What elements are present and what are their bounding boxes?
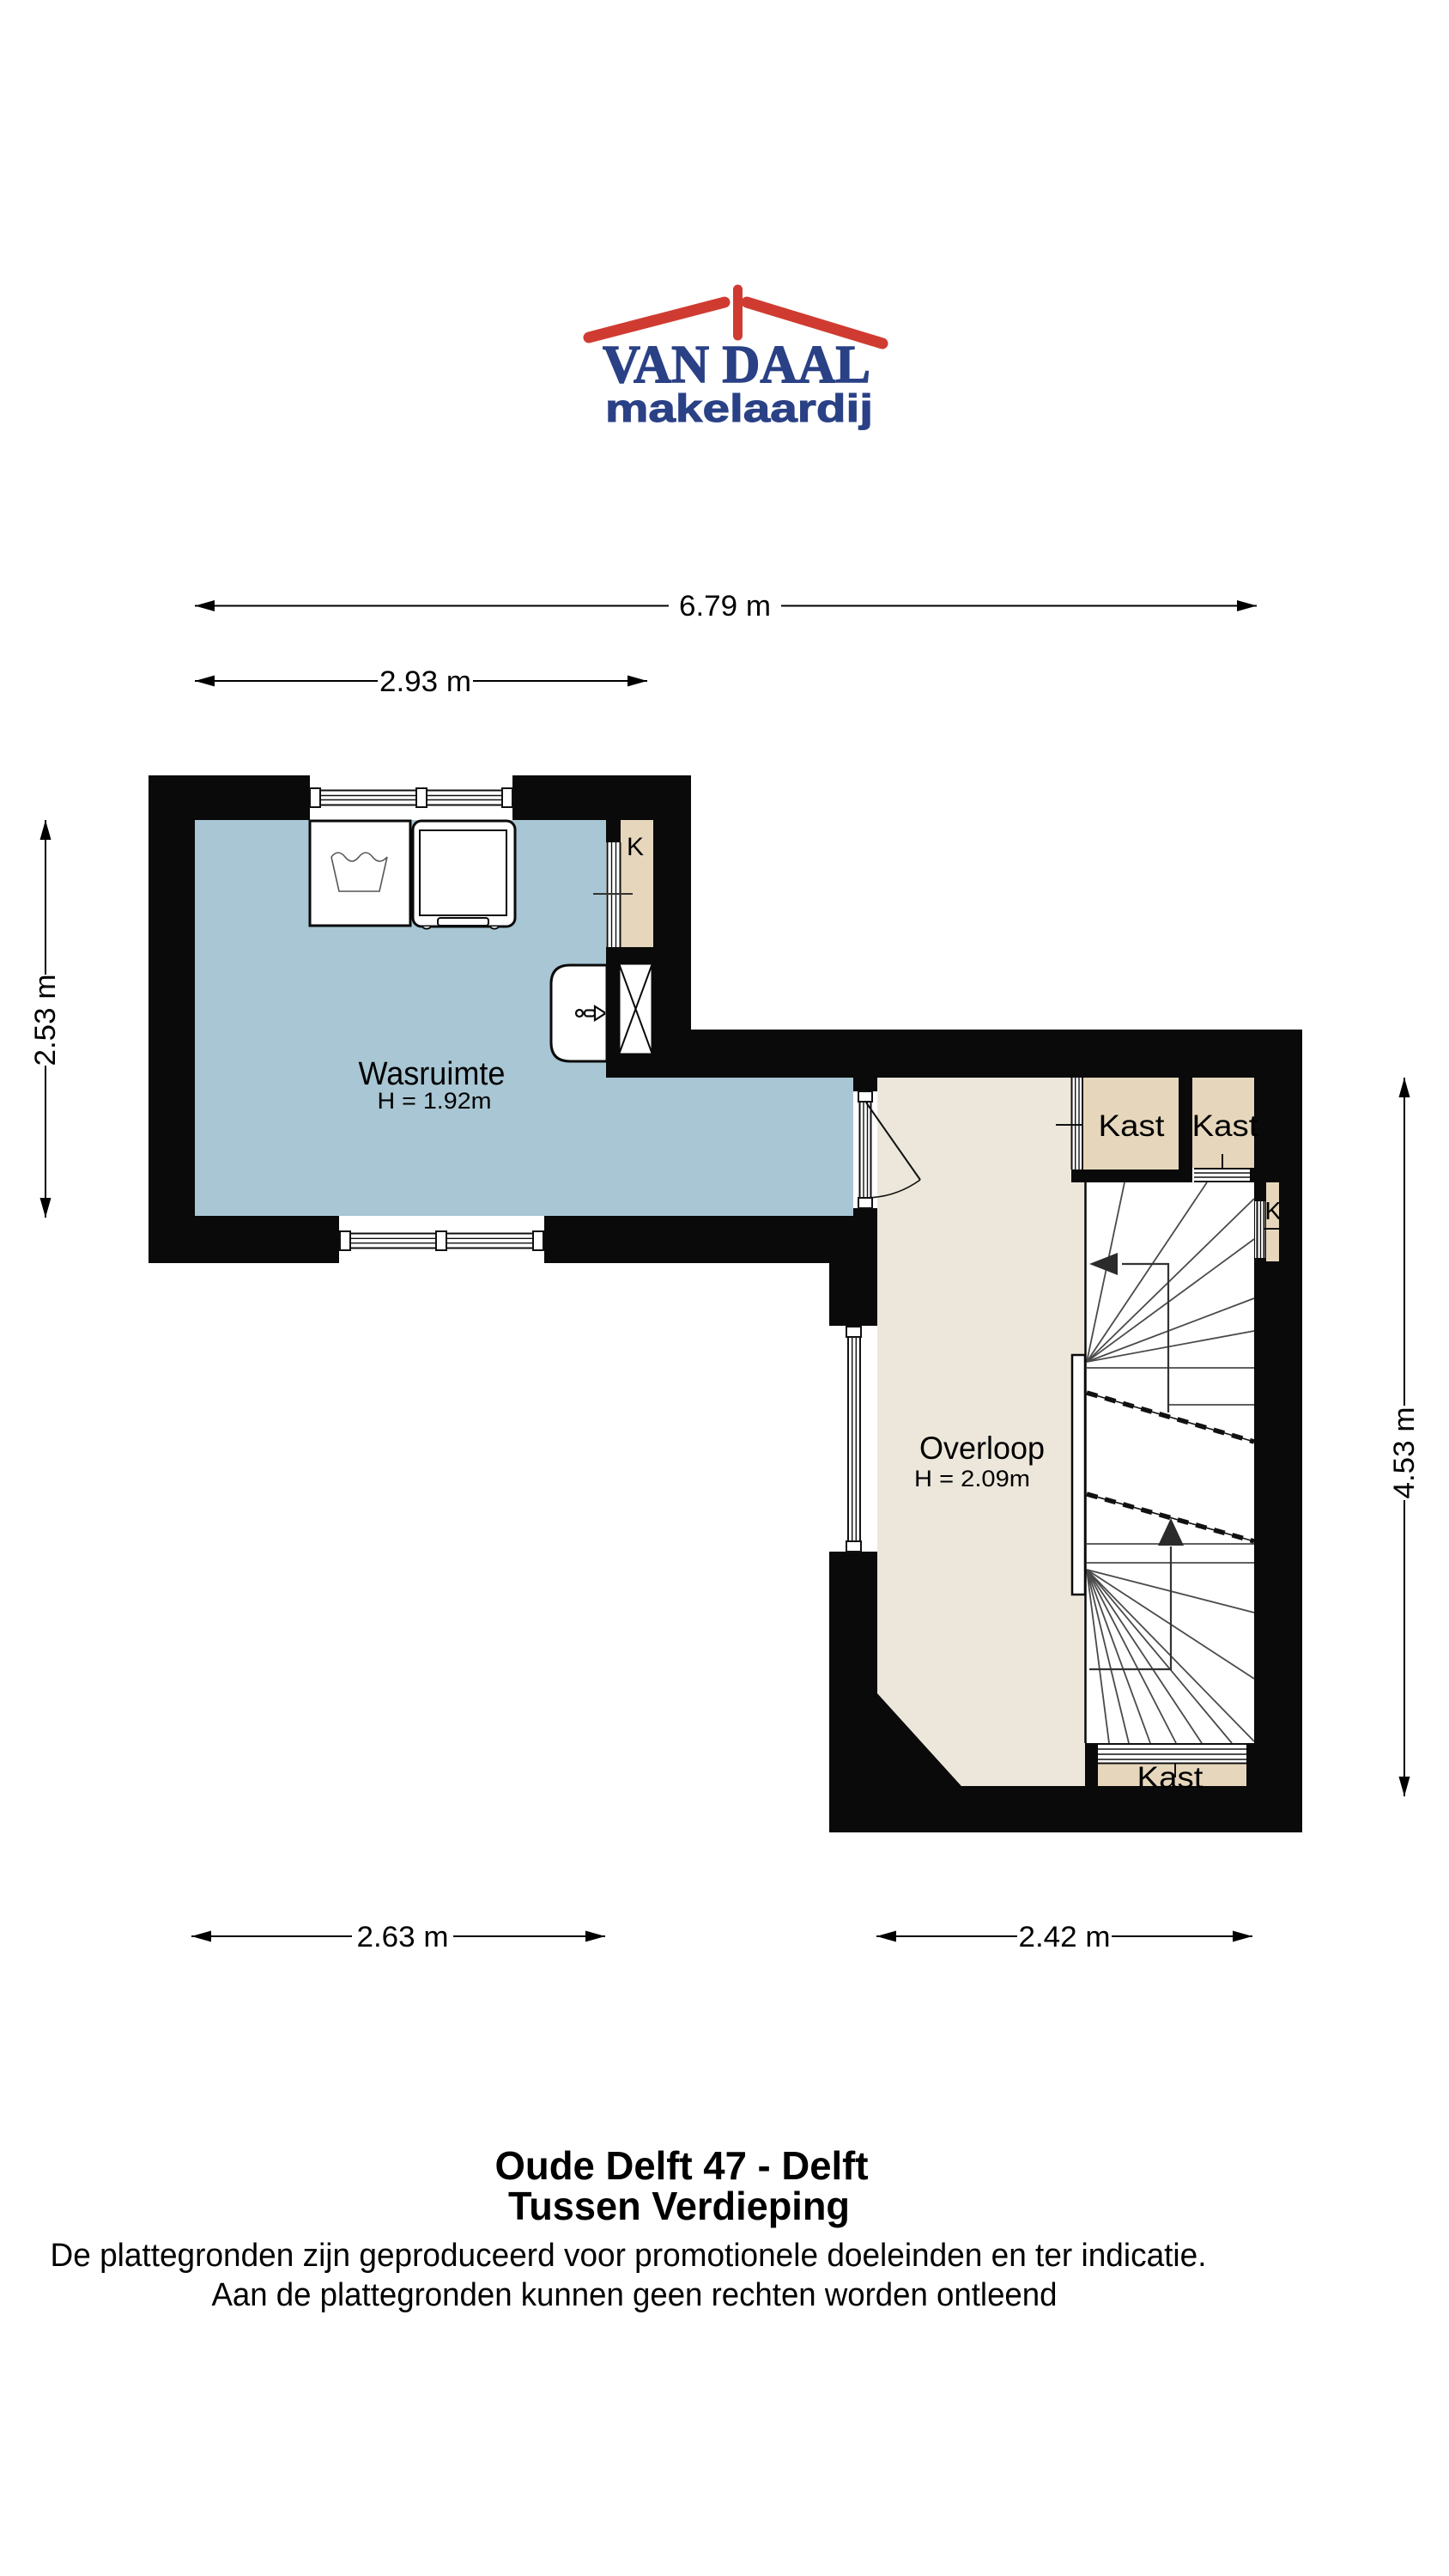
svg-text:Tussen Verdieping: Tussen Verdieping [508,2184,850,2228]
svg-text:2.93 m: 2.93 m [379,665,471,698]
svg-text:Kast: Kast [1099,1109,1165,1143]
svg-text:Wasruimte: Wasruimte [359,1056,506,1092]
svg-text:De plattegronden zijn geproduc: De plattegronden zijn geproduceerd voor … [51,2238,1207,2274]
svg-text:6.79 m: 6.79 m [679,590,771,623]
svg-text:Kast: Kast [1137,1761,1203,1795]
svg-text:2.53 m: 2.53 m [29,975,62,1066]
svg-text:Kast: Kast [1192,1109,1258,1143]
svg-text:K: K [1264,1198,1282,1225]
svg-text:Oude Delft 47 - Delft: Oude Delft 47 - Delft [495,2143,869,2188]
svg-text:H = 1.92m: H = 1.92m [378,1088,492,1114]
svg-text:K: K [627,833,644,861]
svg-text:Aan de plattegronden kunnen ge: Aan de plattegronden kunnen geen rechten… [212,2277,1058,2313]
svg-text:2.42 m: 2.42 m [1019,1921,1111,1953]
svg-text:H = 2.09m: H = 2.09m [914,1466,1030,1492]
svg-text:2.63 m: 2.63 m [357,1921,449,1953]
svg-text:4.53 m: 4.53 m [1388,1407,1421,1499]
svg-text:VAN DAAL: VAN DAAL [603,336,870,394]
svg-text:Overloop: Overloop [919,1431,1045,1466]
svg-text:makelaardij: makelaardij [605,386,873,430]
